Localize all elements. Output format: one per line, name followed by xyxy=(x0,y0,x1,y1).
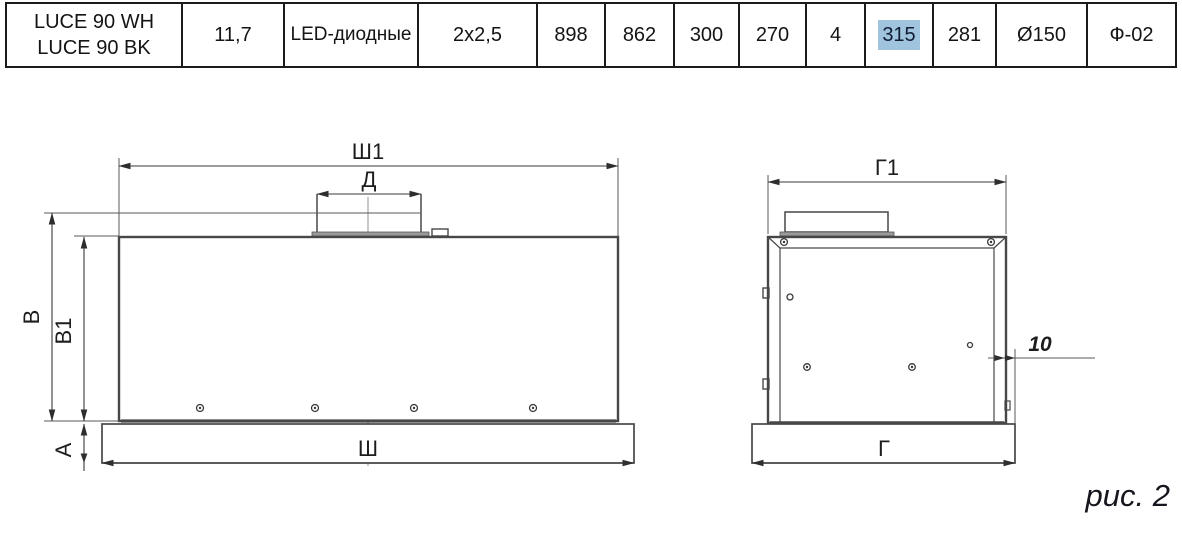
table-cell: 281 xyxy=(934,4,997,66)
hole-center xyxy=(314,407,316,409)
dim-arrow xyxy=(81,454,88,464)
dim-label-v1: В1 xyxy=(51,318,76,345)
table-cell: 270 xyxy=(740,4,807,66)
duct-flange xyxy=(312,232,429,236)
dim-label-offset: 10 xyxy=(1028,333,1052,356)
screw-center xyxy=(783,241,785,243)
table-cell: LED-диодные xyxy=(285,4,419,66)
hole-center xyxy=(911,366,913,368)
dim-label-g: Г xyxy=(878,436,890,461)
dim-arrow xyxy=(1005,355,1015,361)
side-body-outline xyxy=(768,237,1006,423)
hole-center xyxy=(532,407,534,409)
hole-center xyxy=(199,407,201,409)
table-cell: 300 xyxy=(675,4,740,66)
table-cell: 315 xyxy=(866,4,934,66)
table-cell-model: LUCE 90 WH LUCE 90 BK xyxy=(7,4,183,66)
dim-label-sh: Ш xyxy=(358,436,378,461)
selected-text-highlight: 315 xyxy=(878,20,919,50)
side-duct-flange xyxy=(780,232,894,236)
dim-label-a: А xyxy=(51,442,76,457)
spec-table: LUCE 90 WH LUCE 90 BK 11,7 LED-диодные 2… xyxy=(5,2,1177,68)
table-cell: 862 xyxy=(606,4,675,66)
screw-center xyxy=(990,241,992,243)
top-tab xyxy=(432,229,448,236)
side-duct xyxy=(785,212,888,232)
front-view: Ш1 Д В В1 А Ш xyxy=(19,139,634,471)
figure-caption: рис. 2 xyxy=(990,478,1182,514)
table-cell: 4 xyxy=(807,4,866,66)
side-hole xyxy=(787,294,793,300)
dim-label-v: В xyxy=(19,310,44,325)
front-body-outline xyxy=(119,237,618,421)
dim-label-sh1: Ш1 xyxy=(352,139,384,164)
side-view: Г1 Г 10 xyxy=(752,155,1095,463)
hole-center xyxy=(413,407,415,409)
table-cell: 11,7 xyxy=(183,4,285,66)
table-cell: Ø150 xyxy=(997,4,1088,66)
table-cell: 898 xyxy=(538,4,606,66)
table-cell: Ф-02 xyxy=(1088,4,1175,66)
dimension-drawing: Ш1 Д В В1 А Ш xyxy=(0,70,1182,533)
table-cell: 2x2,5 xyxy=(419,4,538,66)
hole-center xyxy=(806,366,808,368)
side-hole xyxy=(968,343,973,348)
dim-label-g1: Г1 xyxy=(875,155,899,180)
dim-label-d: Д xyxy=(362,167,377,192)
manual-page: LUCE 90 WH LUCE 90 BK 11,7 LED-диодные 2… xyxy=(0,0,1182,533)
